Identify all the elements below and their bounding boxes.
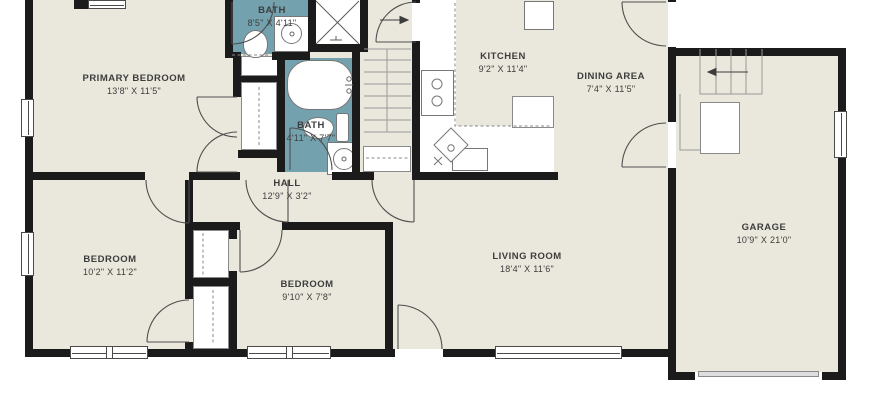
room-name: BEDROOM: [280, 278, 333, 291]
room-label-bedroom-2: BEDROOM 9'10" X 7'8": [280, 278, 333, 304]
door-swings: [146, 2, 666, 349]
shower-icon: [316, 1, 359, 44]
room-name: LIVING ROOM: [492, 250, 561, 263]
floor-plan: PRIMARY BEDROOM 13'8" X 11'5" BATH 8'5" …: [0, 0, 870, 420]
room-name: BATH: [248, 4, 297, 17]
room-label-bath-1: BATH 8'5" X 4'11": [248, 4, 297, 30]
room-dims: 10'2" X 11'2": [83, 266, 137, 279]
room-dims: 9'10" X 7'8": [280, 291, 333, 304]
room-name: KITCHEN: [479, 50, 528, 63]
room-label-primary-bedroom: PRIMARY BEDROOM 13'8" X 11'5": [82, 72, 185, 98]
room-dims: 4'11" X 7'7": [287, 132, 336, 145]
room-name: DINING AREA: [577, 70, 645, 83]
room-dims: 10'9" X 21'0": [737, 234, 792, 247]
room-name: HALL: [262, 177, 311, 190]
stair-arrows: [380, 17, 748, 76]
room-label-bath-2: BATH 4'11" X 7'7": [287, 119, 336, 145]
kitchen-sink-icon: [434, 128, 468, 165]
room-dims: 13'8" X 11'5": [82, 85, 185, 98]
room-dims: 7'4" X 11'5": [577, 83, 645, 96]
plan-linework: [0, 0, 870, 420]
room-dims: 12'9" X 3'2": [262, 190, 311, 203]
room-name: BEDROOM: [83, 253, 137, 266]
staircase-main: [364, 49, 411, 132]
room-name: GARAGE: [737, 221, 792, 234]
room-label-hall: HALL 12'9" X 3'2": [262, 177, 311, 203]
room-name: BATH: [287, 119, 336, 132]
room-label-living-room: LIVING ROOM 18'4" X 11'6": [492, 250, 561, 276]
room-dims: 18'4" X 11'6": [492, 263, 561, 276]
room-label-garage: GARAGE 10'9" X 21'0": [737, 221, 792, 247]
room-dims: 8'5" X 4'11": [248, 17, 297, 30]
room-label-dining-area: DINING AREA 7'4" X 11'5": [577, 70, 645, 96]
stove-burners-icon: [432, 79, 442, 106]
staircase-garage: [680, 49, 762, 150]
room-label-kitchen: KITCHEN 9'2" X 11'4": [479, 50, 528, 76]
room-name: PRIMARY BEDROOM: [82, 72, 185, 85]
room-dims: 9'2" X 11'4": [479, 63, 528, 76]
room-label-bedroom-1: BEDROOM 10'2" X 11'2": [83, 253, 137, 279]
